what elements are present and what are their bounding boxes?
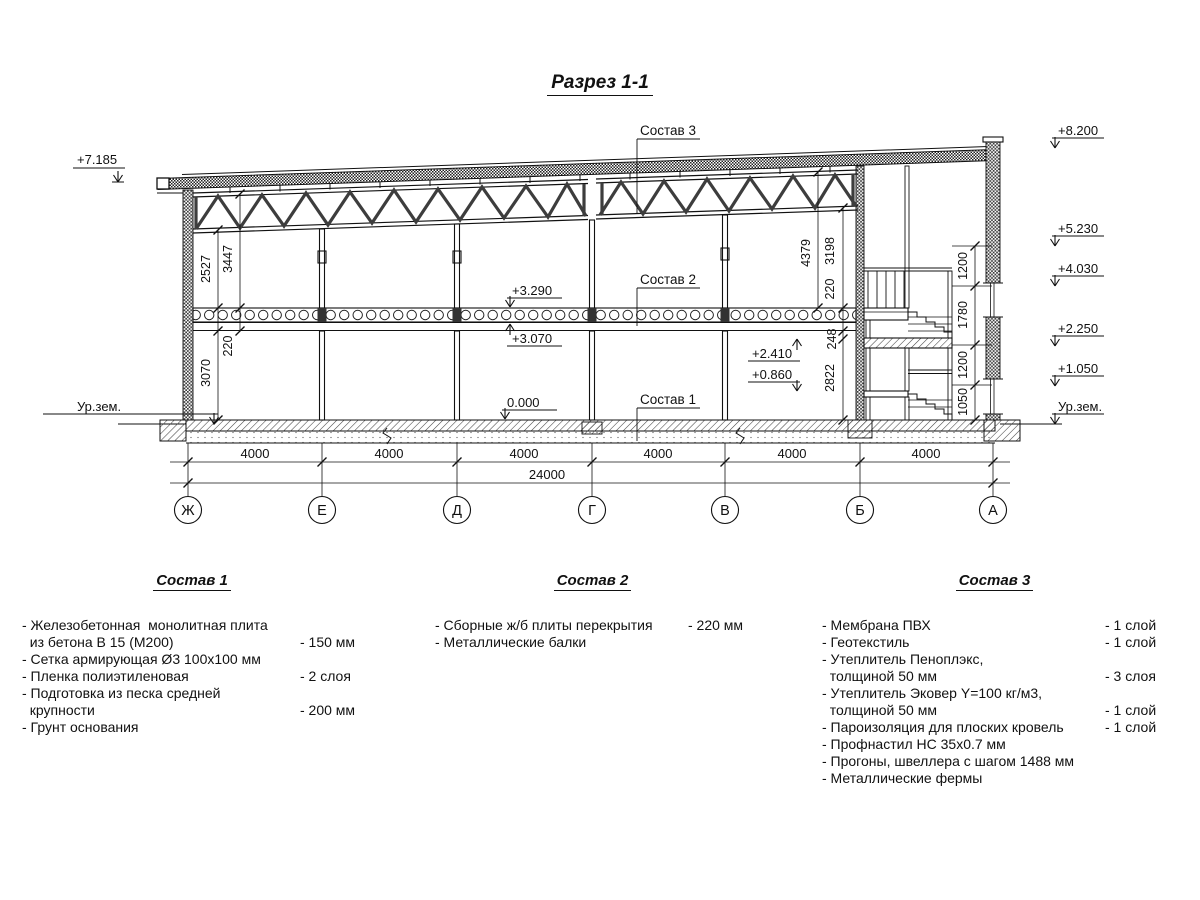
- legend-sostav-3: Состав 3 - Мембрана ПВХ - 1 слой - Геоте…: [822, 572, 1167, 787]
- dim-chains-vertical: 2527 3447 220 3070 4379 3198 220 248 282…: [199, 168, 992, 425]
- legend-1-title: Состав 1: [22, 572, 362, 591]
- section-drawing: Состав 3 Состав 2 Состав 1 +7.185 Ур.зем…: [0, 0, 1200, 560]
- dim-1780: 1780: [956, 301, 970, 329]
- svg-text:+3.290: +3.290: [512, 283, 552, 298]
- legend-item: - Геотекстиль - 1 слой: [822, 634, 1167, 651]
- stair-railing: [864, 268, 952, 308]
- dim-bay-4: 4000: [644, 446, 673, 461]
- parapet-cap: [983, 137, 1003, 142]
- legend-item: - Мембрана ПВХ - 1 слой: [822, 617, 1167, 634]
- ground-slab: [118, 420, 1062, 444]
- stair-posts: [866, 166, 952, 420]
- dim-3447: 3447: [221, 245, 235, 273]
- axis-bubbles: Ж Е Д Г В Б А: [175, 497, 1007, 524]
- svg-text:+3.070: +3.070: [512, 331, 552, 346]
- elev-left-roof: +7.185: [73, 152, 125, 182]
- stair-upper-flight: [908, 312, 952, 338]
- legend-item: - Железобетонная монолитная плита из бет…: [22, 617, 362, 651]
- dim-total: 24000: [529, 467, 565, 482]
- dim-3198: 3198: [823, 237, 837, 265]
- stair-mid-landing: [864, 338, 952, 348]
- dim-bay-6: 4000: [912, 446, 941, 461]
- stair-low-landing: [864, 391, 908, 397]
- dim-bay-2: 4000: [375, 446, 404, 461]
- legend-item: - Металлические балки: [435, 634, 750, 651]
- svg-text:+2.250: +2.250: [1058, 321, 1098, 336]
- dim-3070: 3070: [199, 359, 213, 387]
- wall-axis-b: [856, 166, 864, 420]
- callout-sostav2: Состав 2: [640, 272, 696, 287]
- staircase: [864, 166, 952, 420]
- axis-e: Е: [317, 503, 327, 519]
- dim-248: 248: [825, 329, 839, 350]
- dim-2527: 2527: [199, 255, 213, 283]
- legend-item: - Сетка армирующая Ø3 100х100 мм: [22, 651, 362, 668]
- axis-zh: Ж: [181, 503, 195, 519]
- svg-text:+2.410: +2.410: [752, 346, 792, 361]
- svg-text:+8.200: +8.200: [1058, 123, 1098, 138]
- svg-text:+0.860: +0.860: [752, 367, 792, 382]
- dim-1200-a: 1200: [956, 252, 970, 280]
- legend-item: - Утеплитель Пеноплэкс, толщиной 50 мм -…: [822, 651, 1167, 685]
- dim-1200-b: 1200: [956, 351, 970, 379]
- wall-axis-zh: [183, 190, 193, 420]
- axis-v: В: [720, 503, 730, 519]
- axis-g: Г: [588, 503, 596, 519]
- roof: [157, 137, 1003, 193]
- legend-item: - Сборные ж/б плиты перекрытия - 220 мм: [435, 617, 750, 634]
- legend-2-title: Состав 2: [435, 572, 750, 591]
- svg-text:Ур.зем.: Ур.зем.: [77, 399, 121, 414]
- legend-item: - Металлические фермы: [822, 770, 1167, 787]
- dim-1050: 1050: [956, 388, 970, 416]
- floor-slab: [193, 308, 856, 331]
- svg-text:0.000: 0.000: [507, 395, 540, 410]
- dim-220-left: 220: [221, 336, 235, 357]
- dim-bay-5: 4000: [778, 446, 807, 461]
- floor-beams: [193, 323, 856, 331]
- legend-item: - Профнастил НС 35х0.7 мм: [822, 736, 1167, 753]
- dim-bay-1: 4000: [241, 446, 270, 461]
- wall-axis-a: [983, 142, 1003, 420]
- legend-item: - Прогоны, швеллера с шагом 1488 мм: [822, 753, 1167, 770]
- svg-text:+1.050: +1.050: [1058, 361, 1098, 376]
- legend-3-title: Состав 3: [822, 572, 1167, 591]
- dim-bay-3: 4000: [510, 446, 539, 461]
- dim-chain-bottom: 4000 4000 4000 4000 4000 4000 24000: [170, 443, 1010, 496]
- svg-text:Ур.зем.: Ур.зем.: [1058, 399, 1102, 414]
- callout-sostav1: Состав 1: [640, 392, 696, 407]
- dim-220-right: 220: [823, 279, 837, 300]
- svg-text:+4.030: +4.030: [1058, 261, 1098, 276]
- legend-item: - Подготовка из песка средней крупности …: [22, 685, 362, 719]
- legend-item: - Грунт основания: [22, 719, 362, 736]
- roof-fascia: [157, 178, 169, 189]
- legend-item: - Пароизоляция для плоских кровель - 1 с…: [822, 719, 1167, 736]
- svg-text:+7.185: +7.185: [77, 152, 117, 167]
- svg-text:+5.230: +5.230: [1058, 221, 1098, 236]
- legend-item: - Утеплитель Эковер Y=100 кг/м3, толщино…: [822, 685, 1167, 719]
- axis-a: А: [988, 503, 998, 519]
- callout-sostav3: Состав 3: [640, 123, 696, 138]
- drawing-sheet: Разрез 1-1: [0, 0, 1200, 900]
- axis-b: Б: [855, 503, 865, 519]
- dim-4379: 4379: [799, 239, 813, 267]
- legend-sostav-1: Состав 1 - Железобетонная монолитная пли…: [22, 572, 362, 736]
- axis-d: Д: [452, 503, 462, 519]
- stair-lower-flight: [908, 394, 952, 419]
- elev-right-marks: +8.200 +5.230 +4.030 +2.250 +1.050 Ур.зе…: [1051, 123, 1105, 424]
- dim-2822: 2822: [823, 364, 837, 392]
- legend-sostav-2: Состав 2 - Сборные ж/б плиты перекрытия …: [435, 572, 750, 651]
- legend-item: - Пленка полиэтиленовая - 2 слоя: [22, 668, 362, 685]
